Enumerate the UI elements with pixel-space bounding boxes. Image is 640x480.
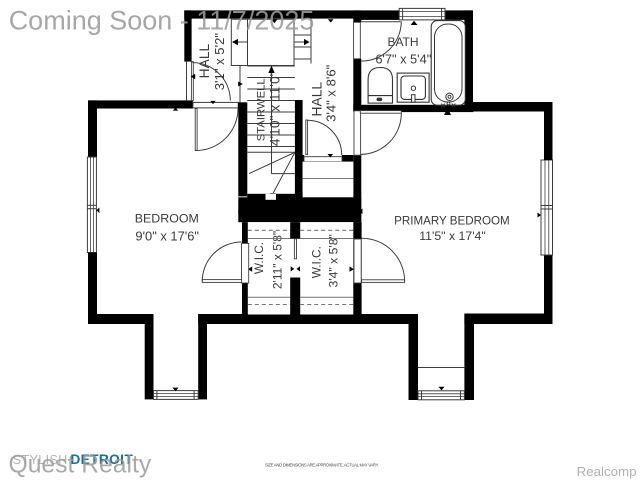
svg-text:STAIRWELL: STAIRWELL [255, 78, 267, 141]
svg-text:SIZE AND DIMENSIONS ARE APPROX: SIZE AND DIMENSIONS ARE APPROXIMATE, ACT… [265, 462, 379, 467]
svg-text:11'5" x 17'4": 11'5" x 17'4" [419, 229, 486, 243]
svg-text:HALL: HALL [197, 44, 212, 79]
svg-text:2'11" x 5'8": 2'11" x 5'8" [271, 231, 285, 289]
svg-text:W.I.C.: W.I.C. [252, 242, 266, 274]
svg-text:BEDROOM: BEDROOM [135, 212, 199, 226]
svg-text:3'4" x 8'6": 3'4" x 8'6" [324, 64, 339, 122]
svg-text:Realcomp: Realcomp [577, 464, 637, 479]
svg-text:9'0" x 17'6": 9'0" x 17'6" [135, 229, 199, 244]
svg-text:Coming Soon - 11/7/2025: Coming Soon - 11/7/2025 [9, 5, 315, 35]
svg-text:3'1" x 5'2": 3'1" x 5'2" [212, 33, 227, 91]
svg-text:W.I.C.: W.I.C. [310, 246, 324, 278]
svg-text:3'4" x 5'8": 3'4" x 5'8" [327, 234, 341, 287]
svg-text:HALL: HALL [310, 82, 325, 117]
svg-text:Quest Realty: Quest Realty [9, 452, 152, 479]
svg-text:6'7" x 5'4": 6'7" x 5'4" [375, 51, 431, 66]
svg-text:PRIMARY BEDROOM: PRIMARY BEDROOM [394, 215, 510, 228]
